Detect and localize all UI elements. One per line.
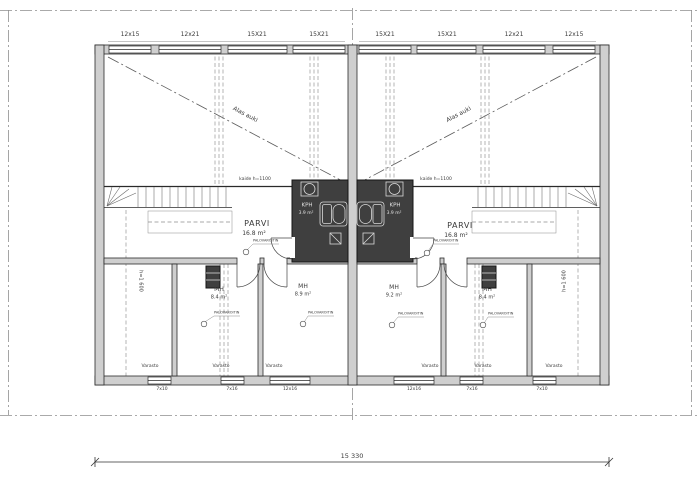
room-area-kph-right: 3.9 m² (387, 212, 402, 217)
room-area-mh3: 9.2 m² (386, 294, 402, 299)
window-size-label: 12x16 (407, 388, 421, 393)
storage-label: Varasto (213, 365, 230, 370)
room-name-mh4: MH (482, 287, 492, 293)
bathroom-right (357, 180, 415, 262)
staircase-right (472, 187, 600, 208)
ceiling-height-label: h=1 600 (138, 270, 143, 292)
railing-height-label: kaide h=1100 (420, 178, 452, 183)
window-size-label: 15X21 (309, 32, 328, 38)
room-area-mh2: 8.9 m² (295, 293, 311, 298)
storage-label: Varasto (546, 365, 563, 370)
room-area-mh1: 8.4 m² (211, 296, 227, 301)
window-size-label: 7x16 (466, 388, 477, 393)
room-area-mh4: 8.4 m² (479, 296, 495, 301)
floor-plan-drawing (0, 0, 700, 500)
smoke-detector-label: PALOVAROITIN (308, 311, 333, 315)
railing-height-label: kaide h=1100 (239, 178, 271, 183)
total-width-dimension: 15 330 (341, 453, 364, 460)
room-name-parvi-left: PARVI (244, 220, 270, 228)
room-name-parvi-right: PARVI (447, 222, 473, 230)
window-size-label: 7x10 (536, 388, 547, 393)
window-size-label: 7x10 (156, 388, 167, 393)
smoke-detector-label: PALOVAROITIN (214, 311, 239, 315)
window-size-label: 12x21 (505, 32, 524, 38)
room-name-mh2: MH (298, 284, 308, 290)
window-size-label: 12x21 (181, 32, 200, 38)
floor-plan-canvas: 12x15 12x21 15X21 15X21 15X21 15X21 12x2… (0, 0, 700, 500)
room-name-mh1: MH (214, 287, 224, 293)
window-size-label: 12x15 (121, 32, 140, 38)
smoke-detector-label: PALOVAROITIN (253, 239, 278, 243)
window-size-label: 15X21 (247, 32, 266, 38)
storage-label: Varasto (142, 365, 159, 370)
window-size-label: 12x16 (283, 388, 297, 393)
smoke-detector-label: PALOVAROITIN (488, 312, 513, 316)
room-area-parvi-left: 16.8 m² (242, 231, 266, 237)
smoke-detector-label: PALOVAROITIN (398, 312, 423, 316)
staircase-left (104, 187, 232, 208)
bathroom-left (290, 180, 348, 262)
ceiling-height-label: h=1 600 (563, 270, 568, 292)
window-size-label: 15X21 (375, 32, 394, 38)
storage-label: Varasto (422, 365, 439, 370)
room-name-kph-right: KPH (389, 203, 400, 209)
storage-label: Varasto (266, 365, 283, 370)
window-size-label: 7x16 (226, 388, 237, 393)
room-name-kph-left: KPH (301, 203, 312, 209)
window-size-label: 12x15 (565, 32, 584, 38)
storage-label: Varasto (475, 365, 492, 370)
room-name-mh3: MH (389, 285, 399, 291)
smoke-detector-label: PALOVAROITIN (433, 239, 458, 243)
room-area-kph-left: 3.9 m² (299, 212, 314, 217)
window-size-label: 15X21 (437, 32, 456, 38)
